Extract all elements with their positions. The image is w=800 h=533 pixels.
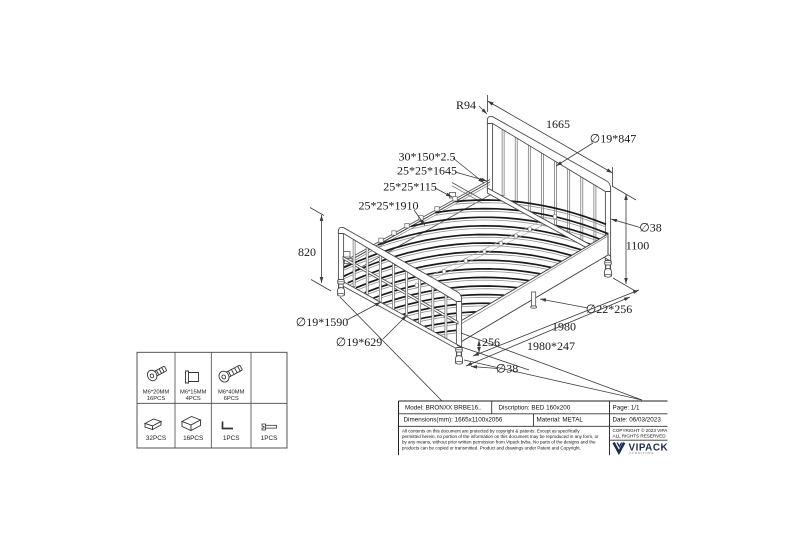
svg-text:Page: 1/1: Page: 1/1 bbox=[613, 404, 640, 411]
svg-text:25*25*1645: 25*25*1645 bbox=[397, 164, 457, 178]
svg-text:32PCS: 32PCS bbox=[146, 435, 166, 442]
svg-text:1PCS: 1PCS bbox=[261, 435, 278, 442]
svg-text:25*25*1910: 25*25*1910 bbox=[359, 199, 419, 213]
svg-text:R94: R94 bbox=[456, 98, 476, 112]
svg-text:1665: 1665 bbox=[546, 117, 570, 131]
svg-text:∅19*847: ∅19*847 bbox=[590, 131, 636, 145]
svg-text:25*25*115: 25*25*115 bbox=[383, 180, 437, 194]
svg-text:F U R N I T U R E: F U R N I T U R E bbox=[630, 451, 654, 455]
svg-text:1PCS: 1PCS bbox=[223, 435, 240, 442]
svg-text:Date: 06/03/2023: Date: 06/03/2023 bbox=[613, 417, 662, 424]
svg-text:∅19*1590: ∅19*1590 bbox=[296, 315, 348, 329]
svg-text:M6*20MM: M6*20MM bbox=[143, 390, 170, 396]
svg-text:1980*247: 1980*247 bbox=[527, 339, 575, 353]
svg-text:1100: 1100 bbox=[626, 239, 650, 253]
svg-text:∅38: ∅38 bbox=[639, 221, 661, 235]
svg-text:by any means, without prior wr: by any means, without prior written perm… bbox=[402, 440, 596, 445]
svg-text:16PCS: 16PCS bbox=[183, 435, 203, 442]
svg-text:products can be copied or tran: products can be copied or transmitted. P… bbox=[402, 445, 581, 450]
svg-text:820: 820 bbox=[298, 245, 316, 259]
svg-text:Model: BRONXX BRBE16..: Model: BRONXX BRBE16.. bbox=[405, 404, 482, 411]
svg-text:30*150*2.5: 30*150*2.5 bbox=[399, 150, 456, 164]
svg-text:M6*40MM: M6*40MM bbox=[218, 390, 245, 396]
svg-text:256: 256 bbox=[482, 335, 500, 349]
svg-text:16PCS: 16PCS bbox=[147, 396, 166, 402]
svg-text:∅22*256: ∅22*256 bbox=[586, 302, 632, 316]
svg-text:permitted herein, no portion o: permitted herein, no portion of the info… bbox=[402, 434, 599, 439]
svg-text:ALL RIGHTS RESERVED: ALL RIGHTS RESERVED bbox=[613, 434, 667, 439]
svg-text:M6*15MM: M6*15MM bbox=[180, 390, 207, 396]
svg-text:∅19*629: ∅19*629 bbox=[336, 335, 382, 349]
svg-text:6PCS: 6PCS bbox=[224, 396, 239, 402]
svg-text:Material: METAL: Material: METAL bbox=[537, 417, 584, 424]
svg-text:Dimensions(mm): 1665x1100x2056: Dimensions(mm): 1665x1100x2056 bbox=[404, 417, 503, 424]
svg-text:∅38: ∅38 bbox=[496, 361, 518, 375]
svg-text:COPYRIGHT © 2023 VIPACK,: COPYRIGHT © 2023 VIPACK, bbox=[613, 427, 675, 433]
svg-text:Discription: BED 160x200: Discription: BED 160x200 bbox=[499, 404, 571, 411]
svg-text:All contents on this document: All contents on this document are protec… bbox=[402, 428, 580, 433]
svg-text:4PCS: 4PCS bbox=[186, 396, 201, 402]
